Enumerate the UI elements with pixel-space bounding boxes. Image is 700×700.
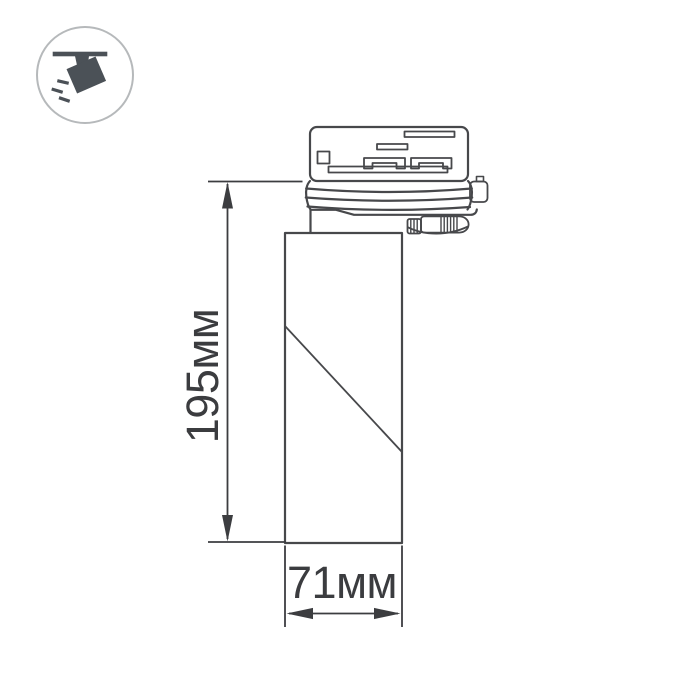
height-dimension-label: 195мм [178, 276, 228, 476]
locking-knob [408, 216, 469, 233]
arrow-down-icon [222, 515, 233, 542]
adapter-neck [311, 210, 477, 234]
arrow-left-icon [287, 608, 314, 619]
adapter-collar [306, 181, 472, 210]
dimension-diagram: 195мм 71мм [0, 0, 700, 700]
arrow-up-icon [222, 182, 233, 209]
width-dimension-label: 71мм [242, 557, 442, 609]
arrow-right-icon [374, 608, 401, 619]
lamp-body [285, 233, 402, 543]
